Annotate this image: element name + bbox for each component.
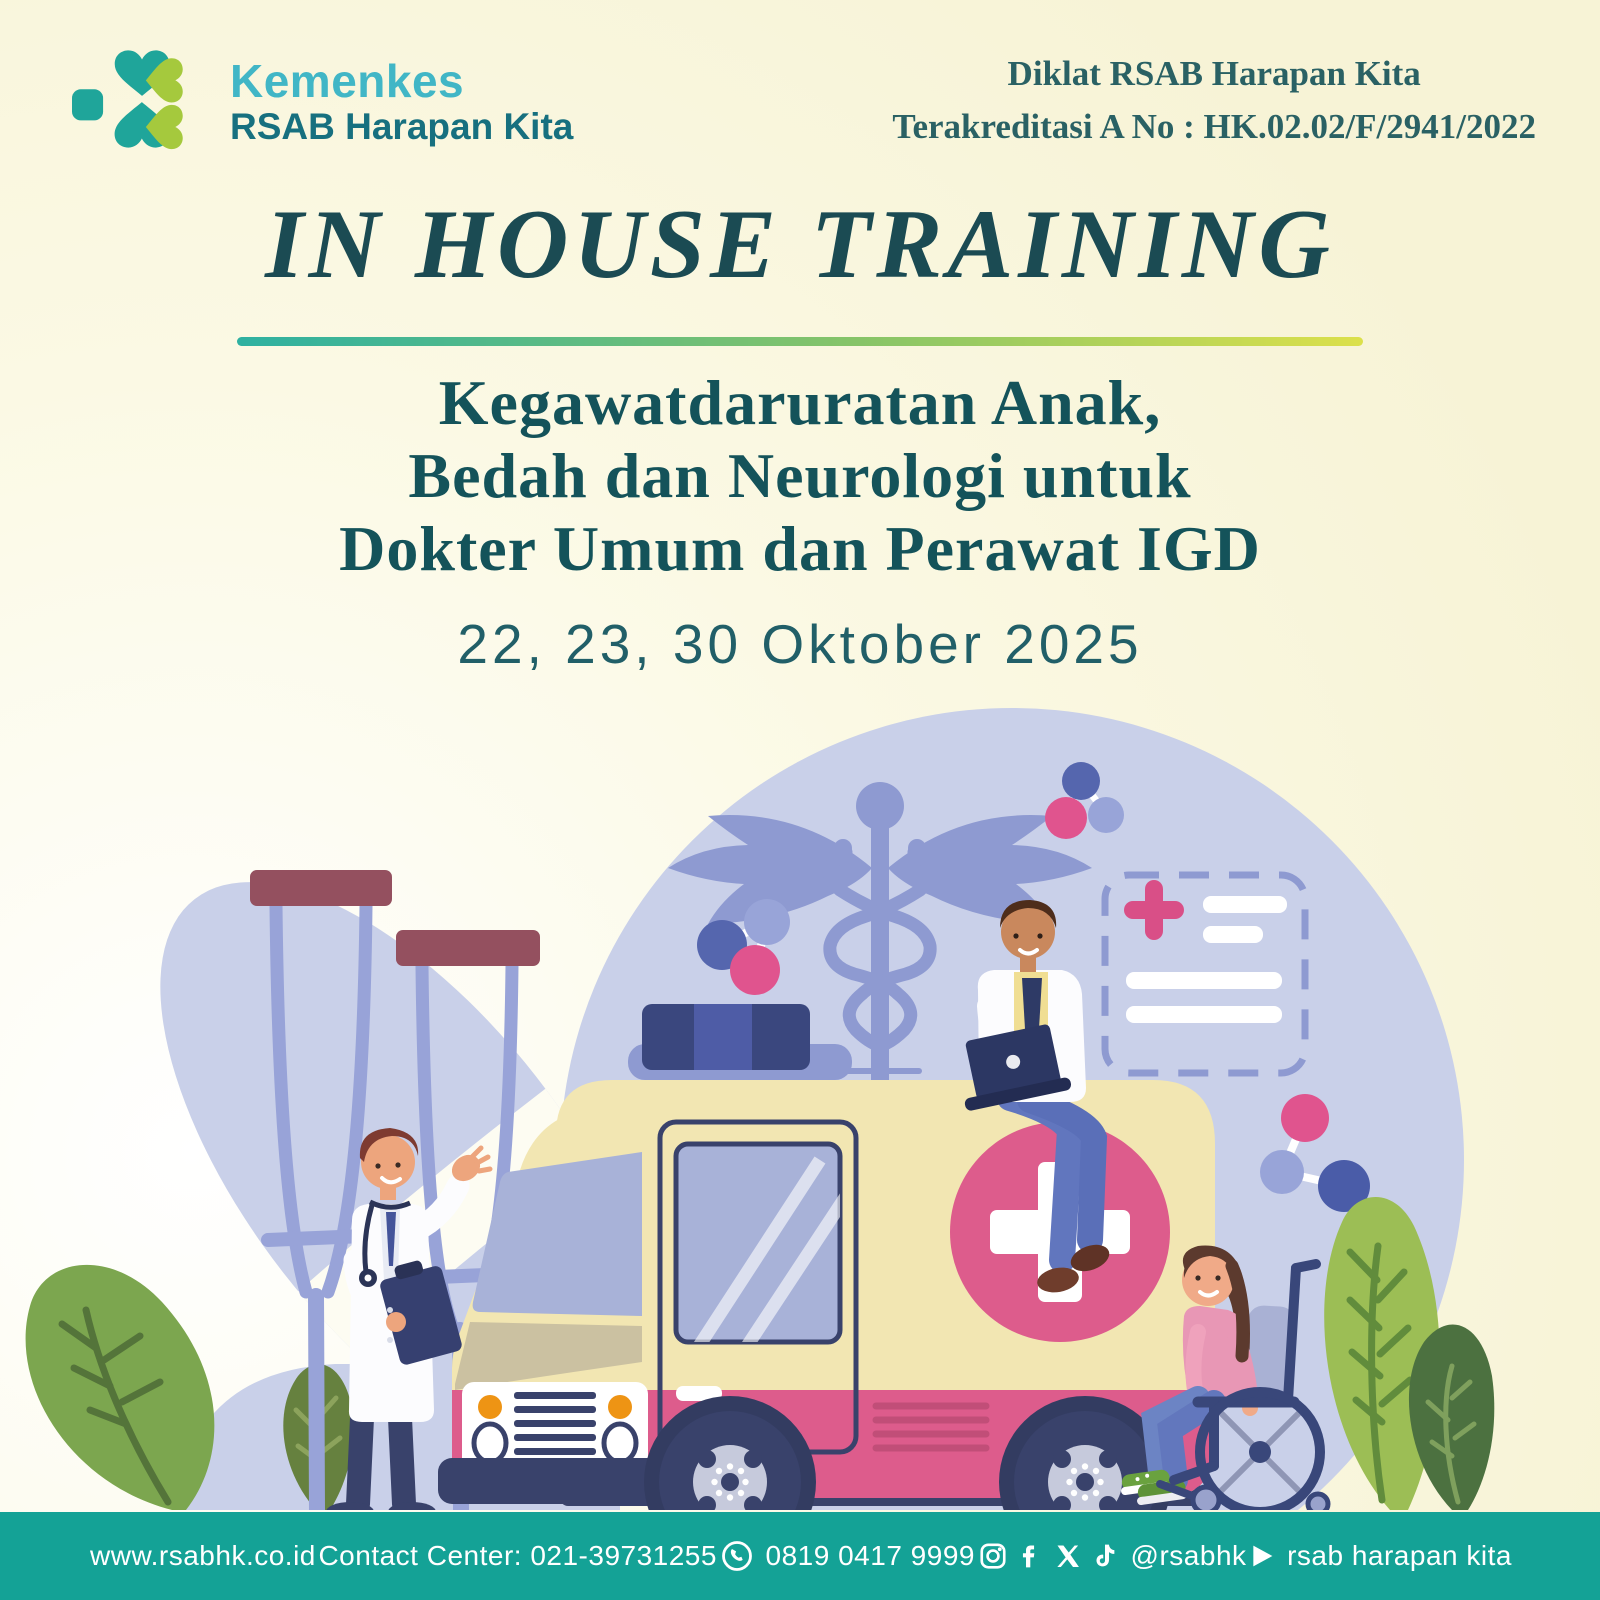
subtitle-line3: Dokter Umum dan Perawat IGD bbox=[0, 512, 1600, 585]
plant-right bbox=[1324, 1197, 1494, 1510]
accreditation-line1: Diklat RSAB Harapan Kita bbox=[892, 48, 1536, 101]
instagram-icon bbox=[978, 1541, 1008, 1571]
whatsapp-contact: 0819 0417 9999 bbox=[720, 1539, 975, 1573]
footer-bar: www.rsabhk.co.id Contact Center: 021-397… bbox=[0, 1512, 1600, 1600]
hospital-name: RSAB Harapan Kita bbox=[230, 107, 573, 147]
subtitle-line1: Kegawatdaruratan Anak, bbox=[0, 366, 1600, 439]
social-media: @rsabhk bbox=[978, 1540, 1247, 1572]
kemenkes-clover-icon bbox=[72, 40, 208, 158]
facebook-icon bbox=[1017, 1542, 1045, 1570]
social-handle: @rsabhk bbox=[1131, 1540, 1247, 1572]
play-icon bbox=[1249, 1543, 1275, 1569]
header: Kemenkes RSAB Harapan Kita Diklat RSAB H… bbox=[72, 40, 1536, 158]
brand-name: Kemenkes bbox=[230, 57, 573, 107]
plant-left bbox=[26, 1265, 354, 1510]
youtube-channel-name: rsab harapan kita bbox=[1287, 1540, 1512, 1572]
accreditation-line2: Terakreditasi A No : HK.02.02/F/2941/202… bbox=[892, 101, 1536, 154]
youtube-channel: rsab harapan kita bbox=[1249, 1540, 1512, 1572]
accreditation-text: Diklat RSAB Harapan Kita Terakreditasi A… bbox=[892, 40, 1536, 153]
whatsapp-icon bbox=[720, 1539, 754, 1573]
website-text: www.rsabhk.co.id bbox=[90, 1540, 316, 1572]
brand-text: Kemenkes RSAB Harapan Kita bbox=[230, 51, 573, 147]
medical-illustration bbox=[0, 660, 1600, 1510]
ambulance-grille bbox=[438, 1382, 668, 1504]
event-subtitle: Kegawatdaruratan Anak, Bedah dan Neurolo… bbox=[0, 366, 1600, 585]
subtitle-line2: Bedah dan Neurologi untuk bbox=[0, 439, 1600, 512]
poster: Kemenkes RSAB Harapan Kita Diklat RSAB H… bbox=[0, 0, 1600, 1600]
brand: Kemenkes RSAB Harapan Kita bbox=[72, 40, 573, 158]
tiktok-icon bbox=[1091, 1542, 1119, 1570]
x-icon bbox=[1054, 1542, 1082, 1570]
title-underline bbox=[237, 337, 1363, 346]
whatsapp-number: 0819 0417 9999 bbox=[766, 1540, 975, 1572]
page-title: IN HOUSE TRAINING bbox=[0, 188, 1600, 301]
contact-center-text: Contact Center: 021-39731255 bbox=[318, 1540, 717, 1572]
